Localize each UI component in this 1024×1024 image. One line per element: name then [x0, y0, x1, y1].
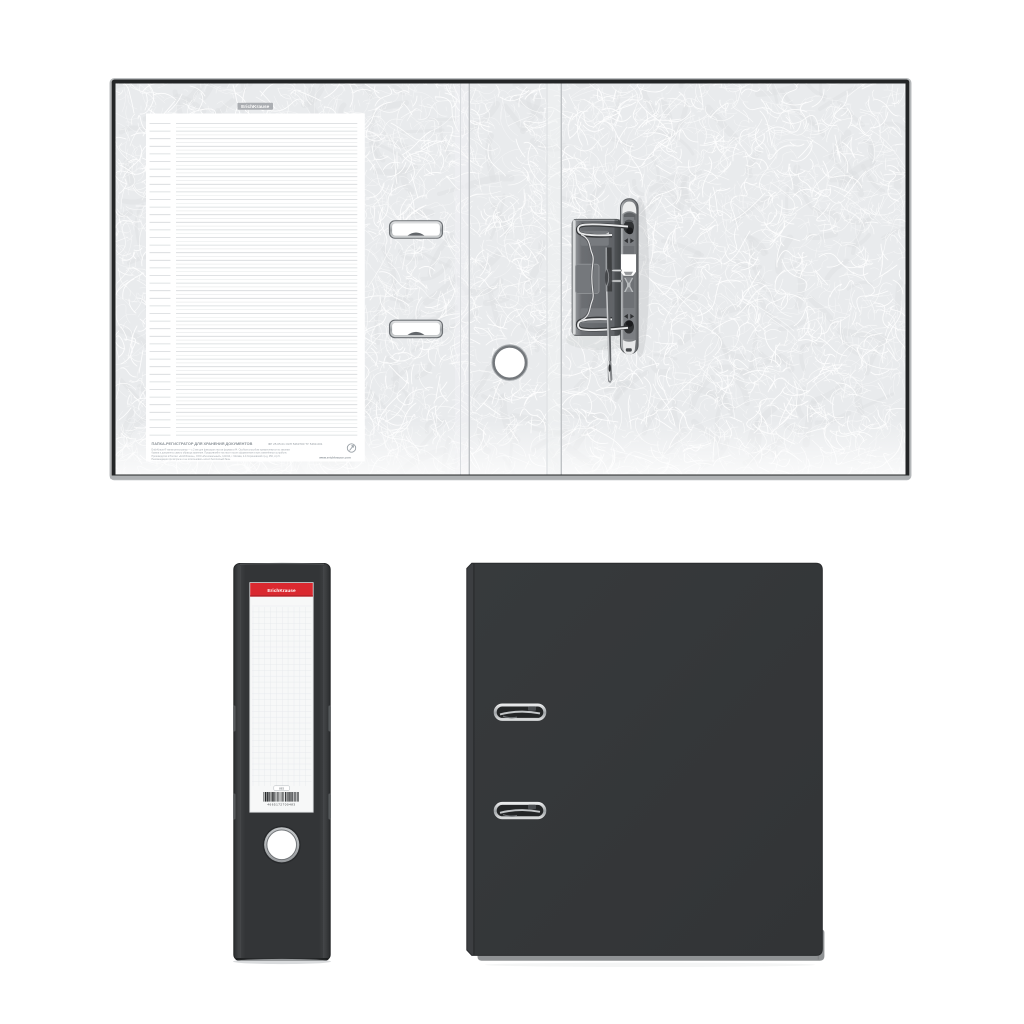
- svg-text:ПАПКА-РЕГИСТРАТОР ДЛЯ ХРАНЕНИЯ: ПАПКА-РЕГИСТРАТОР ДЛЯ ХРАНЕНИЯ ДОКУМЕНТО…: [152, 442, 253, 446]
- svg-text:www.erichkrause.com: www.erichkrause.com: [318, 455, 351, 459]
- svg-text:ФР 25.05.01 ОКП 5463700 ТУ 546: ФР 25.05.01 ОКП 5463700 ТУ 5463-001: [268, 442, 323, 446]
- svg-text:Рекомендации при встрече и не: Рекомендации при встрече и не использова…: [152, 458, 232, 461]
- svg-text:883: 883: [279, 787, 284, 791]
- svg-text:ErichKrause: ErichKrause: [241, 104, 270, 110]
- svg-text:ErichKrause: ErichKrause: [267, 588, 296, 594]
- svg-text:4665172700483: 4665172700483: [267, 803, 295, 807]
